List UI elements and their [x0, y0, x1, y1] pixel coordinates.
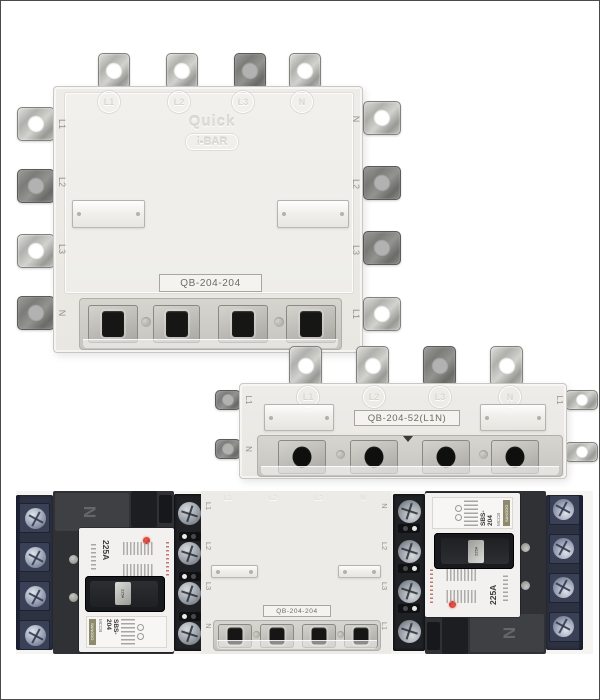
model-label: QB-204-204	[159, 274, 262, 292]
arc-chute	[159, 495, 172, 523]
lug-hole	[28, 177, 45, 195]
indicator-dot	[403, 526, 408, 531]
indicator-dot	[191, 534, 196, 539]
terminal-lug	[17, 169, 55, 203]
side-micro-text	[166, 542, 169, 578]
ce-mark	[455, 514, 462, 521]
terminal-lug	[166, 53, 198, 89]
indicator-dot	[191, 614, 196, 619]
terminal-label: L1	[553, 392, 567, 408]
screw-terminal	[19, 542, 50, 572]
terminal-port-strip	[257, 435, 563, 477]
terminal-lug	[289, 346, 322, 386]
mccb-right: N 225A 225A	[393, 491, 583, 654]
lug-hole	[28, 242, 45, 260]
terminal-lug	[17, 107, 55, 141]
port-contact	[354, 628, 369, 645]
terminal-label: L2	[55, 174, 69, 190]
lug-hole	[374, 239, 391, 257]
terminal-label: N	[378, 498, 392, 514]
label-window	[277, 200, 349, 228]
terminal-label: L3	[349, 242, 363, 258]
side-tab-lug	[565, 442, 598, 462]
alignment-notch	[403, 436, 413, 442]
guide-dot	[274, 317, 284, 327]
indicator-dot	[182, 614, 187, 619]
lug-hole	[374, 305, 391, 323]
screw	[25, 508, 46, 529]
embossed-terminal-mark: L2	[168, 91, 190, 113]
port-contact	[312, 628, 327, 645]
embossed-terminal-mark: L3	[310, 492, 328, 504]
terminal-port	[260, 624, 294, 648]
model-label: SBS-204	[105, 619, 119, 645]
terminal-port	[491, 440, 539, 474]
lug-hole	[431, 357, 448, 375]
indicator-pair	[398, 564, 420, 573]
indicator-dot	[182, 534, 187, 539]
terminal-lug	[98, 53, 130, 89]
indicator-dot	[191, 574, 196, 579]
cert-marks	[455, 500, 462, 526]
embossed-terminal-mark: L2	[363, 386, 385, 408]
brand-chip: SANGDO	[503, 500, 510, 526]
terminal-label: N	[349, 111, 363, 127]
embossed-terminal-mark: L2	[264, 492, 282, 504]
screw-terminal	[19, 581, 50, 611]
neutral-panel: N	[470, 614, 544, 652]
breaker-housing: N 225A 225A	[53, 491, 174, 654]
nameplate: SANGDO MCCB SBS-204	[86, 616, 167, 648]
terminal-label: N	[242, 441, 256, 457]
middle-busbar-unit: L1 L2 L3 N L1 N L1 N QB-204-52(L1N)	[201, 336, 600, 491]
port-contact	[166, 311, 188, 337]
middle-unit-body: L1 L2 L3 N L1 N L1 N QB-204-52(L1N)	[239, 383, 567, 479]
handle-tag: 225A	[121, 589, 126, 598]
spec-table	[123, 542, 153, 555]
assembled-product-photo: N 225A 225A	[16, 491, 593, 654]
indicator-dot	[403, 606, 408, 611]
lug-hole	[222, 443, 234, 456]
top-busbar-unit: L1 L2 L3 N Quick i-BAR L1 L2 L3 N N L2 L…	[1, 1, 431, 361]
terminal-lug	[17, 234, 55, 268]
screw-terminal	[549, 495, 580, 525]
screw	[398, 500, 421, 523]
terminal-label: L1	[202, 498, 216, 514]
side-tab-lug	[215, 439, 241, 459]
port-contact	[232, 311, 254, 337]
kc-mark	[455, 505, 462, 512]
screw-terminal	[549, 573, 580, 603]
lug-hole	[374, 174, 391, 192]
embossed-terminal-mark: N	[291, 91, 313, 113]
lug-hole	[297, 62, 314, 80]
indicator-pair	[179, 612, 201, 621]
embossed-terminal-mark: L1	[219, 492, 237, 504]
kc-mark	[137, 633, 144, 640]
spec-text-lines	[464, 500, 478, 526]
port-contact	[270, 628, 285, 645]
indicator-pair	[398, 604, 420, 613]
load-terminal-block	[16, 495, 53, 650]
arc-chute	[442, 618, 468, 654]
terminal-lug	[17, 296, 55, 330]
lug-hole	[106, 62, 123, 80]
nameplate: SANGDO MCCB SBS-204	[432, 497, 513, 529]
port-contact	[300, 311, 322, 337]
screw	[178, 502, 201, 525]
terminal-label: L1	[242, 392, 256, 408]
lug-hole	[364, 357, 381, 375]
model-label: QB-204-52(L1N)	[354, 410, 460, 426]
screw	[398, 540, 421, 563]
screw	[398, 580, 421, 603]
lug-hole	[222, 394, 234, 407]
label-window	[211, 565, 258, 578]
port-hole	[365, 447, 384, 468]
guide-dot	[141, 317, 151, 327]
lug-hole	[297, 357, 314, 375]
lug-hole	[28, 115, 45, 133]
cert-marks	[137, 619, 144, 645]
label-window	[264, 404, 334, 431]
brand-label: SANGDO	[504, 504, 509, 521]
lug-hole	[498, 357, 515, 375]
terminal-lug	[289, 53, 321, 89]
breaker-housing: N 225A 225A	[425, 491, 546, 654]
terminal-lug	[363, 101, 401, 135]
port-hole	[293, 447, 312, 468]
terminal-port	[218, 624, 252, 648]
mccb-left: N 225A 225A	[16, 491, 206, 654]
terminal-port-strip	[213, 620, 381, 651]
guide-dot	[479, 450, 488, 459]
breaker-face: 225A 225A SANGDO MCCB SBS-204	[79, 528, 174, 652]
terminal-port	[153, 305, 200, 343]
ce-mark	[137, 624, 144, 631]
type-label: MCCB	[496, 500, 501, 526]
arc-chute	[131, 491, 157, 527]
terminal-label: L1	[349, 306, 363, 322]
center-busbar-unit: L1 L2 L3 N L1 L2 L3 N N L2 L3 L1 QB-204-…	[201, 491, 391, 654]
screw	[398, 620, 421, 643]
port-hole	[506, 447, 525, 468]
terminal-lug	[490, 346, 523, 386]
screw	[25, 547, 46, 568]
terminal-label: N	[55, 305, 69, 321]
guide-dot	[253, 631, 260, 638]
spec-text-lines	[121, 619, 135, 645]
screw-terminal	[19, 503, 50, 533]
terminal-port	[350, 440, 398, 474]
neutral-mark: N	[500, 627, 520, 639]
terminal-lug	[363, 231, 401, 265]
side-tab-lug	[565, 390, 598, 410]
terminal-label: L2	[202, 538, 216, 554]
spec-table	[446, 568, 476, 581]
breaker-toggle: 225A	[434, 533, 514, 569]
neutral-panel: N	[55, 493, 129, 531]
screw	[521, 581, 530, 590]
top-unit-body: L1 L2 L3 N Quick i-BAR L1 L2 L3 N N L2 L…	[53, 86, 363, 353]
terminal-lug	[363, 166, 401, 200]
model-label: SBS-204	[480, 500, 494, 526]
lug-hole	[174, 62, 191, 80]
neutral-mark: N	[79, 506, 99, 518]
indicator-dot	[412, 606, 417, 611]
indicator-pair	[398, 524, 420, 533]
toggle-handle: 225A	[115, 582, 131, 605]
port-hole	[437, 447, 456, 468]
spec-text-lines	[91, 544, 96, 570]
screw-terminal	[19, 620, 50, 650]
screw	[25, 586, 46, 607]
screw	[69, 593, 78, 602]
terminal-port	[344, 624, 378, 648]
screw	[178, 542, 201, 565]
lug-hole	[576, 394, 588, 407]
load-terminal-block	[546, 495, 583, 650]
lug-hole	[28, 304, 45, 322]
screw-terminal	[549, 612, 580, 642]
rating-label: 225A	[101, 540, 111, 560]
terminal-lug	[234, 53, 266, 89]
lug-hole	[374, 109, 391, 127]
screw	[553, 616, 574, 637]
screw	[178, 582, 201, 605]
port-contact	[102, 311, 124, 337]
terminal-port	[88, 305, 138, 343]
brand-chip: SANGDO	[89, 619, 96, 645]
model-label: QB-204-204	[263, 605, 331, 617]
terminal-port	[278, 440, 326, 474]
terminal-label: L1	[55, 116, 69, 132]
screw	[69, 555, 78, 564]
lug-hole	[576, 446, 588, 459]
embossed-terminal-mark: L1	[98, 91, 120, 113]
rating-label: 225A	[488, 585, 498, 605]
embossed-terminal-mark: L3	[429, 386, 451, 408]
toggle-handle: 225A	[468, 540, 484, 563]
quick-ibar-logo: Quick	[176, 113, 248, 130]
terminal-lug	[356, 346, 389, 386]
type-label: MCCB	[98, 619, 103, 645]
embossed-terminal-mark: L3	[232, 91, 254, 113]
screw-terminal	[549, 534, 580, 564]
screw	[521, 543, 530, 552]
guide-dot	[337, 631, 344, 638]
label-window	[72, 200, 145, 228]
indicator-dot	[182, 574, 187, 579]
spec-table	[446, 590, 476, 603]
breaker-face: 225A 225A SANGDO MCCB SBS-204	[425, 493, 520, 617]
handle-tag: 225A	[474, 547, 479, 556]
terminal-lug	[423, 346, 456, 386]
product-photo-canvas: L1 L2 L3 N Quick i-BAR L1 L2 L3 N N L2 L…	[0, 0, 600, 700]
terminal-lug	[363, 297, 401, 331]
screw	[178, 622, 201, 645]
terminal-port	[302, 624, 336, 648]
side-tab-lug	[215, 390, 241, 410]
spec-text-lines	[503, 575, 508, 601]
label-window	[338, 565, 381, 578]
indicator-dot	[403, 566, 408, 571]
terminal-label: L3	[202, 578, 216, 594]
screw	[25, 625, 46, 646]
lug-hole	[242, 62, 259, 80]
screw	[553, 577, 574, 598]
label-window	[480, 404, 546, 431]
indicator-dot	[412, 566, 417, 571]
terminal-label: L3	[378, 578, 392, 594]
embossed-terminal-mark: N	[354, 492, 372, 504]
quick-ibar-logo-box: i-BAR	[186, 134, 238, 150]
indicator-pair	[179, 572, 201, 581]
terminal-label: L2	[378, 538, 392, 554]
terminal-label: L2	[349, 176, 363, 192]
indicator-pair	[179, 532, 201, 541]
indicator-dot	[412, 526, 417, 531]
arc-chute	[427, 622, 440, 650]
side-micro-text	[430, 567, 433, 603]
terminal-port	[422, 440, 470, 474]
line-terminal-strip	[393, 494, 425, 651]
breaker-toggle: 225A	[85, 576, 165, 612]
port-contact	[228, 628, 243, 645]
brand-label: SANGDO	[90, 623, 95, 640]
guide-dot	[336, 450, 345, 459]
terminal-label: L3	[55, 241, 69, 257]
screw	[553, 499, 574, 520]
screw	[553, 538, 574, 559]
